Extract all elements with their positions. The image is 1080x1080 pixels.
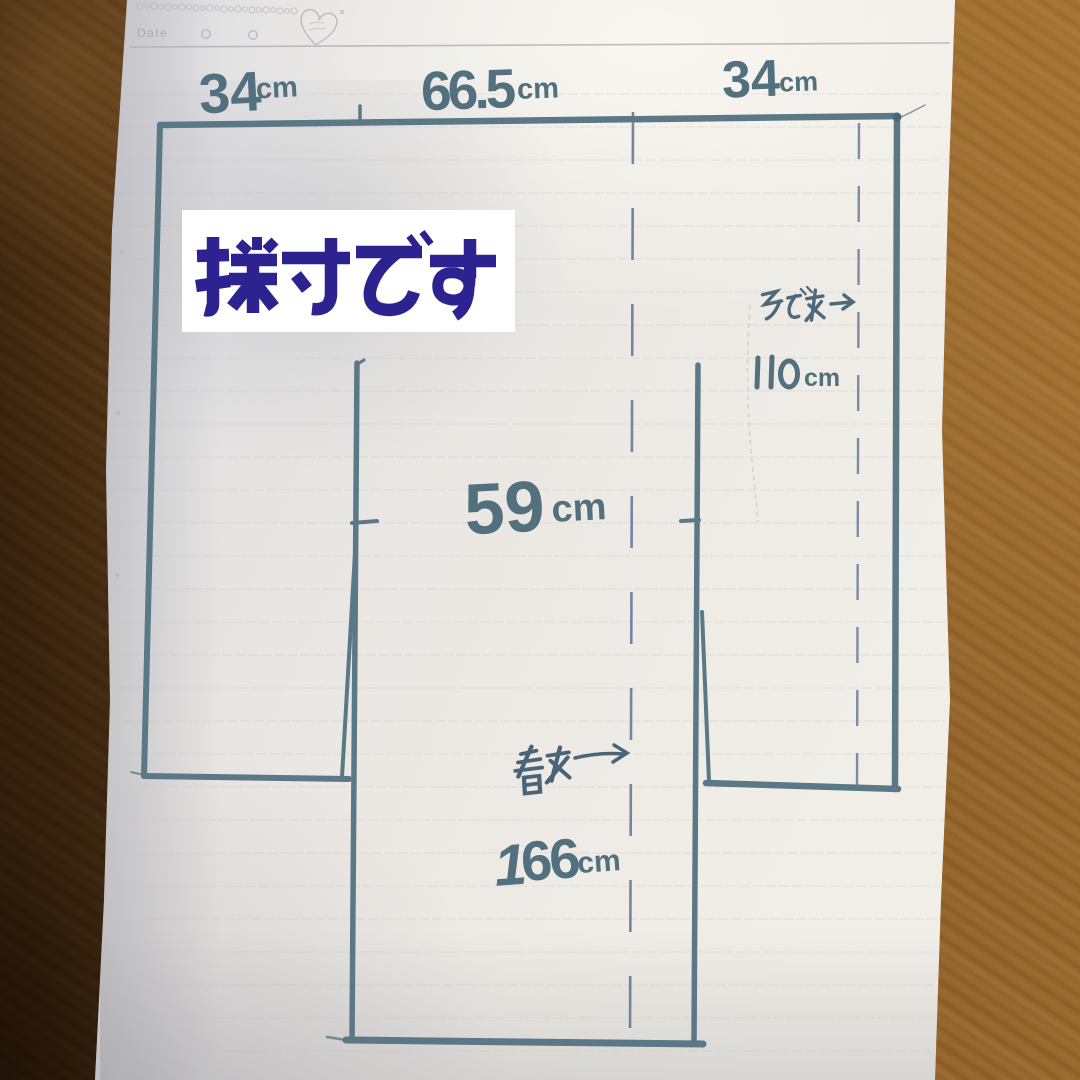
svg-text:34: 34: [721, 50, 781, 110]
svg-text:cm: cm: [779, 66, 819, 97]
svg-text:59: 59: [462, 466, 546, 550]
svg-text:cm: cm: [255, 71, 299, 105]
svg-text:cm: cm: [516, 72, 559, 105]
svg-text:cm: cm: [804, 364, 840, 392]
svg-text:Date: Date: [137, 26, 168, 40]
svg-text:cm: cm: [576, 844, 622, 880]
svg-text:66: 66: [519, 826, 581, 893]
svg-text:34: 34: [197, 59, 263, 125]
svg-text:cm: cm: [550, 486, 607, 531]
svg-text:66.5: 66.5: [420, 57, 517, 122]
